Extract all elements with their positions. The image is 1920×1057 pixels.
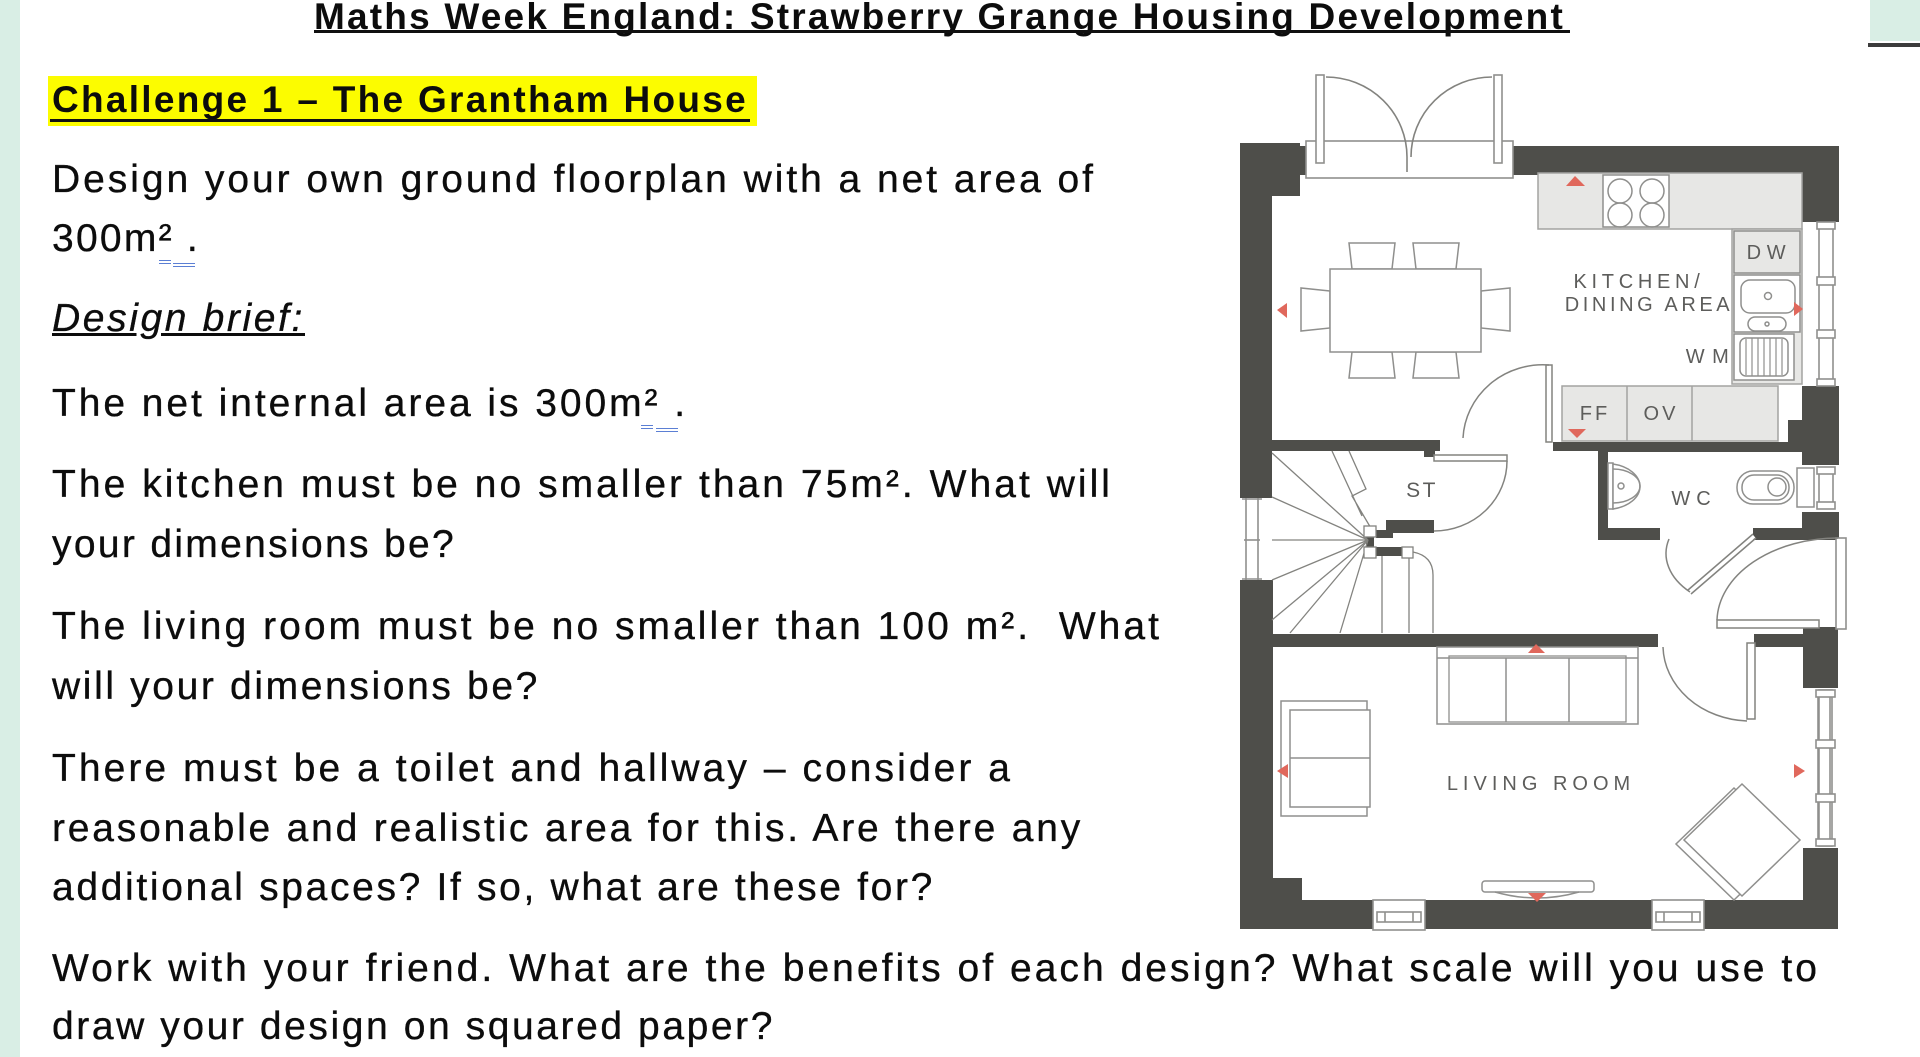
svg-text:ST: ST (1406, 479, 1438, 502)
svg-text:DINING AREA: DINING AREA (1565, 294, 1734, 316)
svg-text:OV: OV (1644, 403, 1679, 425)
svg-text:KITCHEN/: KITCHEN/ (1574, 271, 1705, 293)
svg-text:DW: DW (1747, 242, 1792, 264)
svg-text:FF: FF (1580, 403, 1610, 425)
svg-text:WC: WC (1671, 488, 1716, 510)
svg-text:WM: WM (1686, 346, 1737, 368)
svg-text:LIVING ROOM: LIVING ROOM (1447, 773, 1635, 795)
